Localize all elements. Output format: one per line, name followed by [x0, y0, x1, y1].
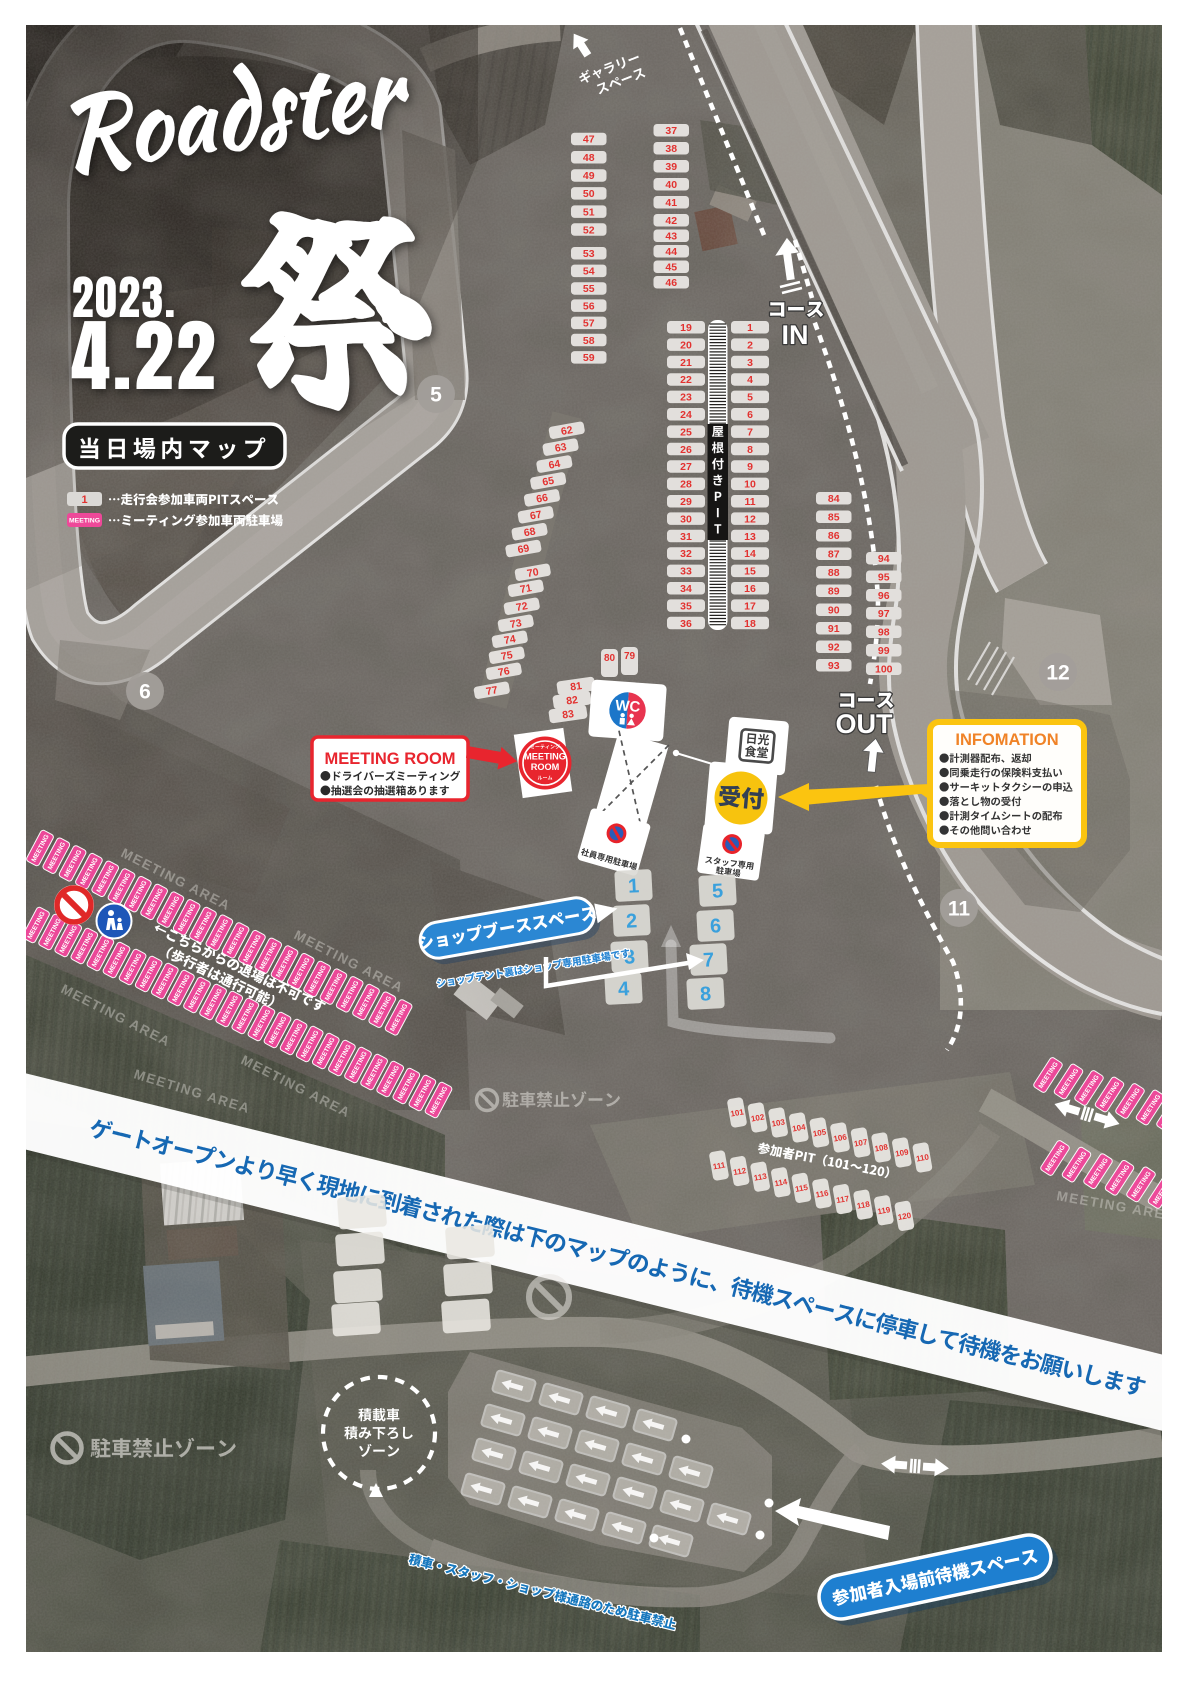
svg-text:79: 79	[624, 651, 636, 662]
svg-text:WC: WC	[615, 697, 641, 716]
svg-text:45: 45	[665, 262, 677, 274]
svg-text:89: 89	[828, 586, 840, 598]
svg-text:83: 83	[561, 708, 574, 722]
svg-text:77: 77	[485, 684, 499, 698]
svg-text:97: 97	[878, 608, 890, 620]
svg-text:68: 68	[523, 525, 537, 539]
svg-text:13: 13	[744, 531, 756, 543]
svg-text:7: 7	[702, 949, 714, 972]
svg-text:5: 5	[747, 392, 753, 404]
svg-text:92: 92	[828, 642, 840, 654]
svg-text:70: 70	[526, 566, 540, 580]
svg-text:5: 5	[430, 384, 442, 407]
svg-text:1: 1	[81, 494, 87, 506]
svg-text:57: 57	[583, 318, 595, 330]
svg-text:41: 41	[665, 197, 677, 209]
svg-text:MEETING ROOM: MEETING ROOM	[324, 750, 455, 768]
svg-text:2: 2	[625, 910, 637, 933]
svg-text:72: 72	[515, 600, 529, 614]
svg-text:59: 59	[583, 352, 595, 364]
svg-text:38: 38	[665, 143, 677, 155]
svg-text:INFOMATION: INFOMATION	[955, 731, 1058, 749]
svg-text:31: 31	[680, 531, 692, 543]
svg-text:20: 20	[680, 339, 692, 351]
svg-text:12: 12	[1046, 662, 1069, 685]
svg-text:50: 50	[583, 188, 595, 200]
svg-text:6: 6	[747, 409, 753, 421]
svg-text:33: 33	[680, 566, 692, 578]
svg-text:84: 84	[828, 493, 840, 505]
svg-text:MEETING: MEETING	[524, 752, 566, 762]
svg-text:43: 43	[665, 231, 677, 243]
svg-text:24: 24	[680, 409, 692, 421]
svg-text:MEETING: MEETING	[69, 518, 100, 525]
svg-text:12: 12	[744, 513, 756, 525]
svg-text:71: 71	[519, 582, 533, 596]
svg-text:44: 44	[665, 246, 677, 258]
svg-text:93: 93	[828, 660, 840, 672]
svg-text:19: 19	[680, 322, 692, 334]
svg-text:23: 23	[680, 392, 692, 404]
svg-text:46: 46	[665, 277, 677, 289]
svg-text:28: 28	[680, 479, 692, 491]
svg-text:21: 21	[680, 357, 692, 369]
svg-text:25: 25	[680, 426, 692, 438]
svg-text:56: 56	[583, 300, 595, 312]
svg-text:75: 75	[500, 649, 514, 663]
svg-text:14: 14	[744, 548, 756, 560]
svg-text:67: 67	[529, 509, 543, 523]
svg-text:74: 74	[503, 633, 517, 647]
svg-text:87: 87	[828, 549, 840, 561]
svg-text:42: 42	[665, 215, 677, 227]
svg-text:99: 99	[878, 645, 890, 657]
svg-text:18: 18	[744, 618, 756, 630]
svg-text:17: 17	[744, 600, 756, 612]
svg-text:53: 53	[583, 248, 595, 260]
svg-text:8: 8	[699, 983, 711, 1006]
svg-text:66: 66	[535, 492, 549, 506]
svg-text:88: 88	[828, 567, 840, 579]
svg-text:58: 58	[583, 335, 595, 347]
svg-text:81: 81	[569, 680, 582, 694]
svg-text:62: 62	[560, 424, 574, 438]
svg-text:73: 73	[509, 617, 523, 631]
svg-text:76: 76	[497, 665, 511, 679]
svg-text:3: 3	[747, 357, 753, 369]
svg-text:52: 52	[583, 224, 595, 236]
svg-text:49: 49	[583, 170, 595, 182]
svg-text:65: 65	[541, 475, 555, 489]
svg-text:32: 32	[680, 548, 692, 560]
svg-text:8: 8	[747, 444, 753, 456]
svg-text:80: 80	[604, 653, 616, 664]
svg-text:ROOM: ROOM	[531, 762, 560, 772]
svg-text:36: 36	[680, 618, 692, 630]
svg-text:35: 35	[680, 600, 692, 612]
svg-text:63: 63	[554, 441, 568, 455]
svg-text:15: 15	[744, 566, 756, 578]
svg-text:40: 40	[665, 179, 677, 191]
svg-text:9: 9	[747, 461, 753, 473]
svg-text:22: 22	[680, 374, 692, 386]
svg-text:48: 48	[583, 152, 595, 164]
svg-text:27: 27	[680, 461, 692, 473]
svg-text:6: 6	[139, 681, 151, 704]
svg-text:5: 5	[711, 880, 723, 903]
svg-text:16: 16	[744, 583, 756, 595]
svg-text:2: 2	[747, 339, 753, 351]
svg-text:11: 11	[948, 898, 971, 921]
svg-text:55: 55	[583, 283, 595, 295]
svg-text:64: 64	[548, 458, 562, 472]
svg-text:29: 29	[680, 496, 692, 508]
svg-text:90: 90	[828, 605, 840, 617]
svg-text:4: 4	[747, 374, 753, 386]
svg-text:85: 85	[828, 512, 840, 524]
svg-text:100: 100	[875, 664, 893, 676]
svg-text:86: 86	[828, 530, 840, 542]
svg-text:1: 1	[627, 875, 639, 898]
svg-text:69: 69	[517, 542, 531, 556]
svg-text:26: 26	[680, 444, 692, 456]
svg-text:34: 34	[680, 583, 692, 595]
svg-text:94: 94	[878, 553, 890, 565]
svg-text:6: 6	[709, 915, 721, 938]
svg-text:37: 37	[665, 125, 677, 137]
svg-text:47: 47	[583, 134, 595, 146]
svg-text:98: 98	[878, 627, 890, 639]
svg-text:51: 51	[583, 206, 595, 218]
svg-text:1: 1	[747, 322, 753, 334]
svg-text:10: 10	[744, 479, 756, 491]
svg-text:4: 4	[617, 978, 630, 1001]
svg-text:95: 95	[878, 572, 890, 584]
svg-text:39: 39	[665, 161, 677, 173]
svg-text:91: 91	[828, 623, 840, 635]
svg-text:11: 11	[744, 496, 755, 508]
svg-text:30: 30	[680, 513, 692, 525]
svg-text:96: 96	[878, 590, 890, 602]
svg-text:54: 54	[583, 266, 595, 278]
svg-text:82: 82	[565, 694, 578, 708]
svg-text:7: 7	[747, 426, 753, 438]
